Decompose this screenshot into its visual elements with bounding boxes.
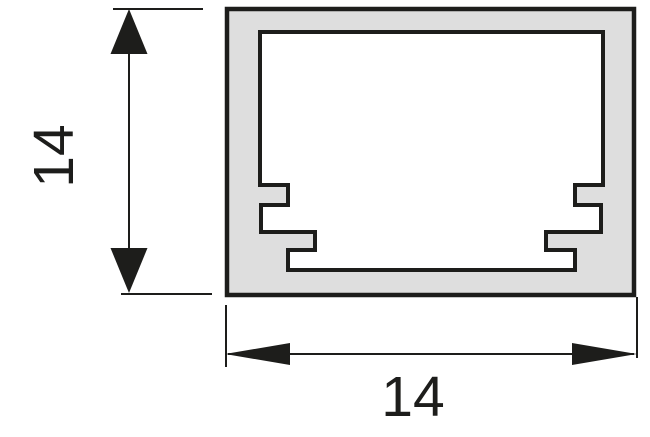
height-dimension-label: 14 — [22, 124, 86, 187]
arrow-down-icon — [111, 248, 148, 293]
arrow-right-icon — [572, 343, 637, 365]
drawing-svg: 14 14 — [0, 0, 650, 437]
width-dimension-group: 14 — [225, 297, 637, 429]
arrow-up-icon — [111, 9, 148, 54]
height-dimension-group: 14 — [22, 9, 212, 294]
technical-drawing-canvas: 14 14 — [0, 0, 650, 437]
arrow-left-icon — [225, 343, 290, 365]
width-dimension-label: 14 — [381, 365, 444, 429]
profile-body-group — [227, 9, 634, 295]
